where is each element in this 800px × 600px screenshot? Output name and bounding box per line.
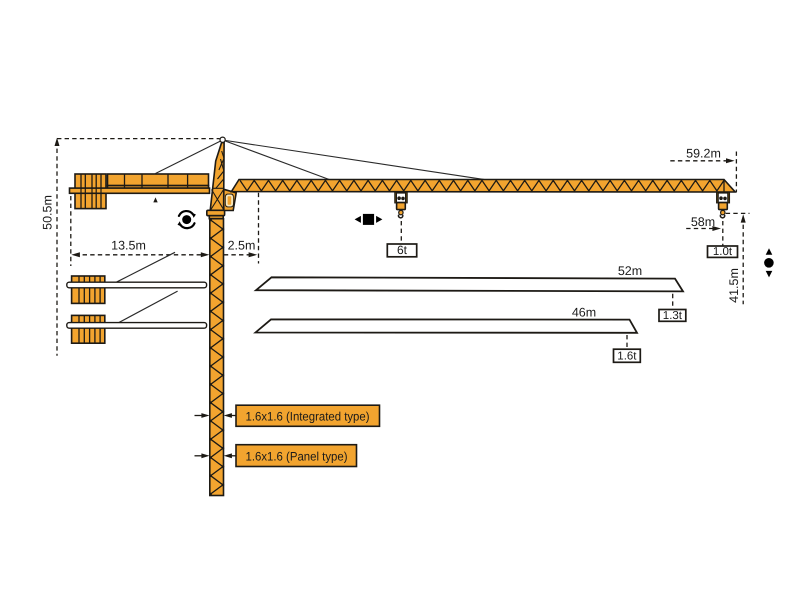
svg-text:13.5m: 13.5m bbox=[111, 238, 146, 252]
svg-text:50.5m: 50.5m bbox=[41, 195, 55, 230]
svg-text:1.6t: 1.6t bbox=[617, 351, 637, 363]
svg-text:1.6x1.6 (Integrated type): 1.6x1.6 (Integrated type) bbox=[246, 409, 370, 423]
svg-text:59.2m: 59.2m bbox=[686, 147, 721, 161]
svg-text:1.6x1.6 (Panel type): 1.6x1.6 (Panel type) bbox=[246, 449, 348, 463]
svg-text:1.0t: 1.0t bbox=[713, 246, 733, 258]
svg-text:41.5m: 41.5m bbox=[727, 268, 741, 303]
svg-text:58m: 58m bbox=[691, 215, 715, 229]
svg-text:46m: 46m bbox=[572, 306, 596, 320]
svg-text:52m: 52m bbox=[618, 264, 642, 278]
svg-text:1.3t: 1.3t bbox=[663, 310, 683, 322]
svg-text:2.5m: 2.5m bbox=[228, 238, 256, 252]
svg-text:6t: 6t bbox=[397, 243, 408, 257]
